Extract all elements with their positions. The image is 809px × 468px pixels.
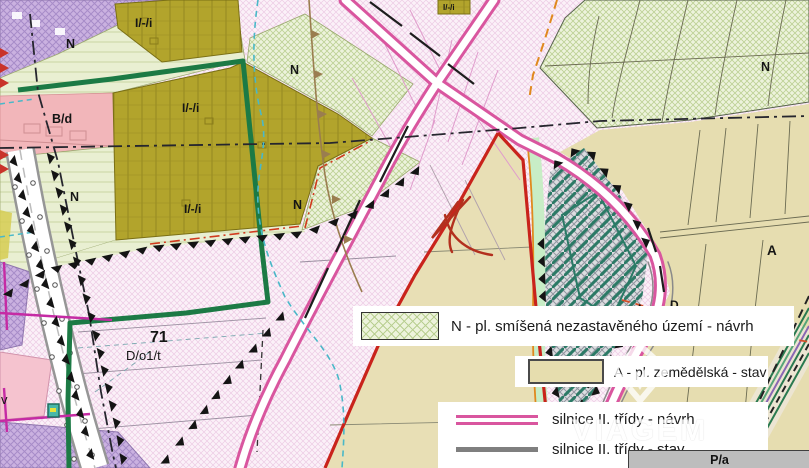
map-label: I/-/i xyxy=(182,101,199,115)
pink-road-swatch-icon xyxy=(456,415,538,425)
map-label: N xyxy=(70,190,79,204)
map-label: v xyxy=(1,392,8,407)
legend-label: A - pl. zemědělská - stav xyxy=(614,364,767,380)
gray-road-swatch-icon xyxy=(456,447,538,452)
map-label: A xyxy=(767,243,777,258)
map-label: N xyxy=(66,37,75,51)
zoning-map-screenshot: N I/-/i B/d N I/-/i I/-/i N N N A D 71 D… xyxy=(0,0,809,468)
map-label: I/-/i xyxy=(443,3,455,12)
map-label: P/a xyxy=(710,453,729,467)
green-crosshatch-swatch-icon xyxy=(361,312,439,340)
legend-row-road-proposed: silnice II. třídy - návrh xyxy=(438,411,768,428)
map-label: N xyxy=(290,63,299,77)
map-label: 71 xyxy=(150,329,168,346)
legend-label: N - pl. smíšená nezastavěného území - ná… xyxy=(451,318,754,335)
legend-label: silnice II. třídy - návrh xyxy=(552,411,695,428)
tan-swatch-icon xyxy=(528,359,604,384)
road-label-box: P/a xyxy=(628,450,809,468)
map-canvas: N I/-/i B/d N I/-/i I/-/i N N N A D 71 D… xyxy=(0,0,809,468)
map-label: B/d xyxy=(52,112,72,126)
map-label: D/o1/t xyxy=(126,348,161,363)
map-label: N xyxy=(761,60,770,74)
legend-item-agricultural: A - pl. zemědělská - stav xyxy=(515,356,768,387)
map-label: I/-/i xyxy=(184,202,201,216)
map-label: I/-/i xyxy=(135,16,152,30)
legend-item-mixed-nonbuildable: N - pl. smíšená nezastavěného území - ná… xyxy=(353,306,794,346)
map-label: N xyxy=(293,198,302,212)
